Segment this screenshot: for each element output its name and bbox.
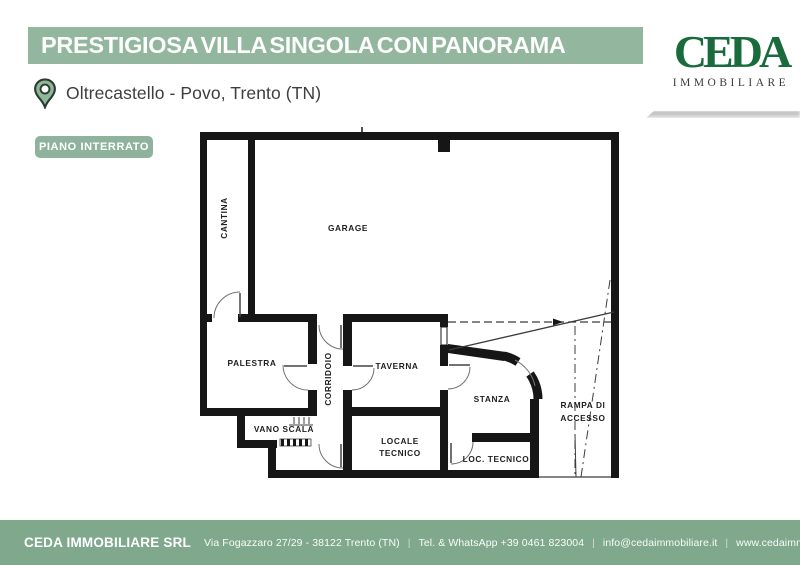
footer-phone: Tel. & WhatsApp +39 0461 823004 (418, 537, 584, 549)
curved-wall (504, 356, 538, 399)
floor-plan: GARAGE CANTINA PALESTRA CORRIDOIO TAVERN… (0, 0, 800, 565)
room-label-stanza: STANZA (474, 394, 511, 404)
room-label-palestra: PALESTRA (228, 358, 277, 368)
room-label-taverna: TAVERNA (375, 361, 418, 371)
footer-separator: | (408, 537, 411, 549)
room-label-rampa-2: ACCESSO (560, 413, 605, 423)
room-label-rampa-1: RAMPA DI (561, 400, 606, 410)
room-label-locale-tecnico-2: TECNICO (379, 448, 421, 458)
room-label-locale-tecnico-1: LOCALE (381, 436, 419, 446)
footer-separator: | (725, 537, 728, 549)
room-label-garage: GARAGE (328, 223, 368, 233)
footer-email: info@cedaimmobiliare.it (603, 537, 718, 549)
flyer-page: PRESTIGIOSA VILLA SINGOLA CON PANORAMA O… (0, 0, 800, 565)
stairs-treads (281, 439, 308, 446)
door-jamb (441, 327, 447, 345)
footer-website: www.cedaimmobiliare.it (736, 537, 800, 549)
footer-separator: | (592, 537, 595, 549)
room-label-loc-tecnico: LOC. TECNICO (463, 454, 530, 464)
room-label-corridoio: CORRIDOIO (323, 352, 333, 405)
room-label-cantina: CANTINA (219, 197, 229, 239)
footer-address: Via Fogazzaro 27/29 - 38122 Trento (TN) (204, 537, 400, 549)
room-labels: GARAGE CANTINA PALESTRA CORRIDOIO TAVERN… (219, 197, 606, 464)
footer-bar: CEDA IMMOBILIARE SRL Via Fogazzaro 27/29… (0, 520, 800, 565)
footer-company: CEDA IMMOBILIARE SRL (24, 535, 191, 550)
room-label-vano-scala: VANO SCALA (254, 424, 314, 434)
